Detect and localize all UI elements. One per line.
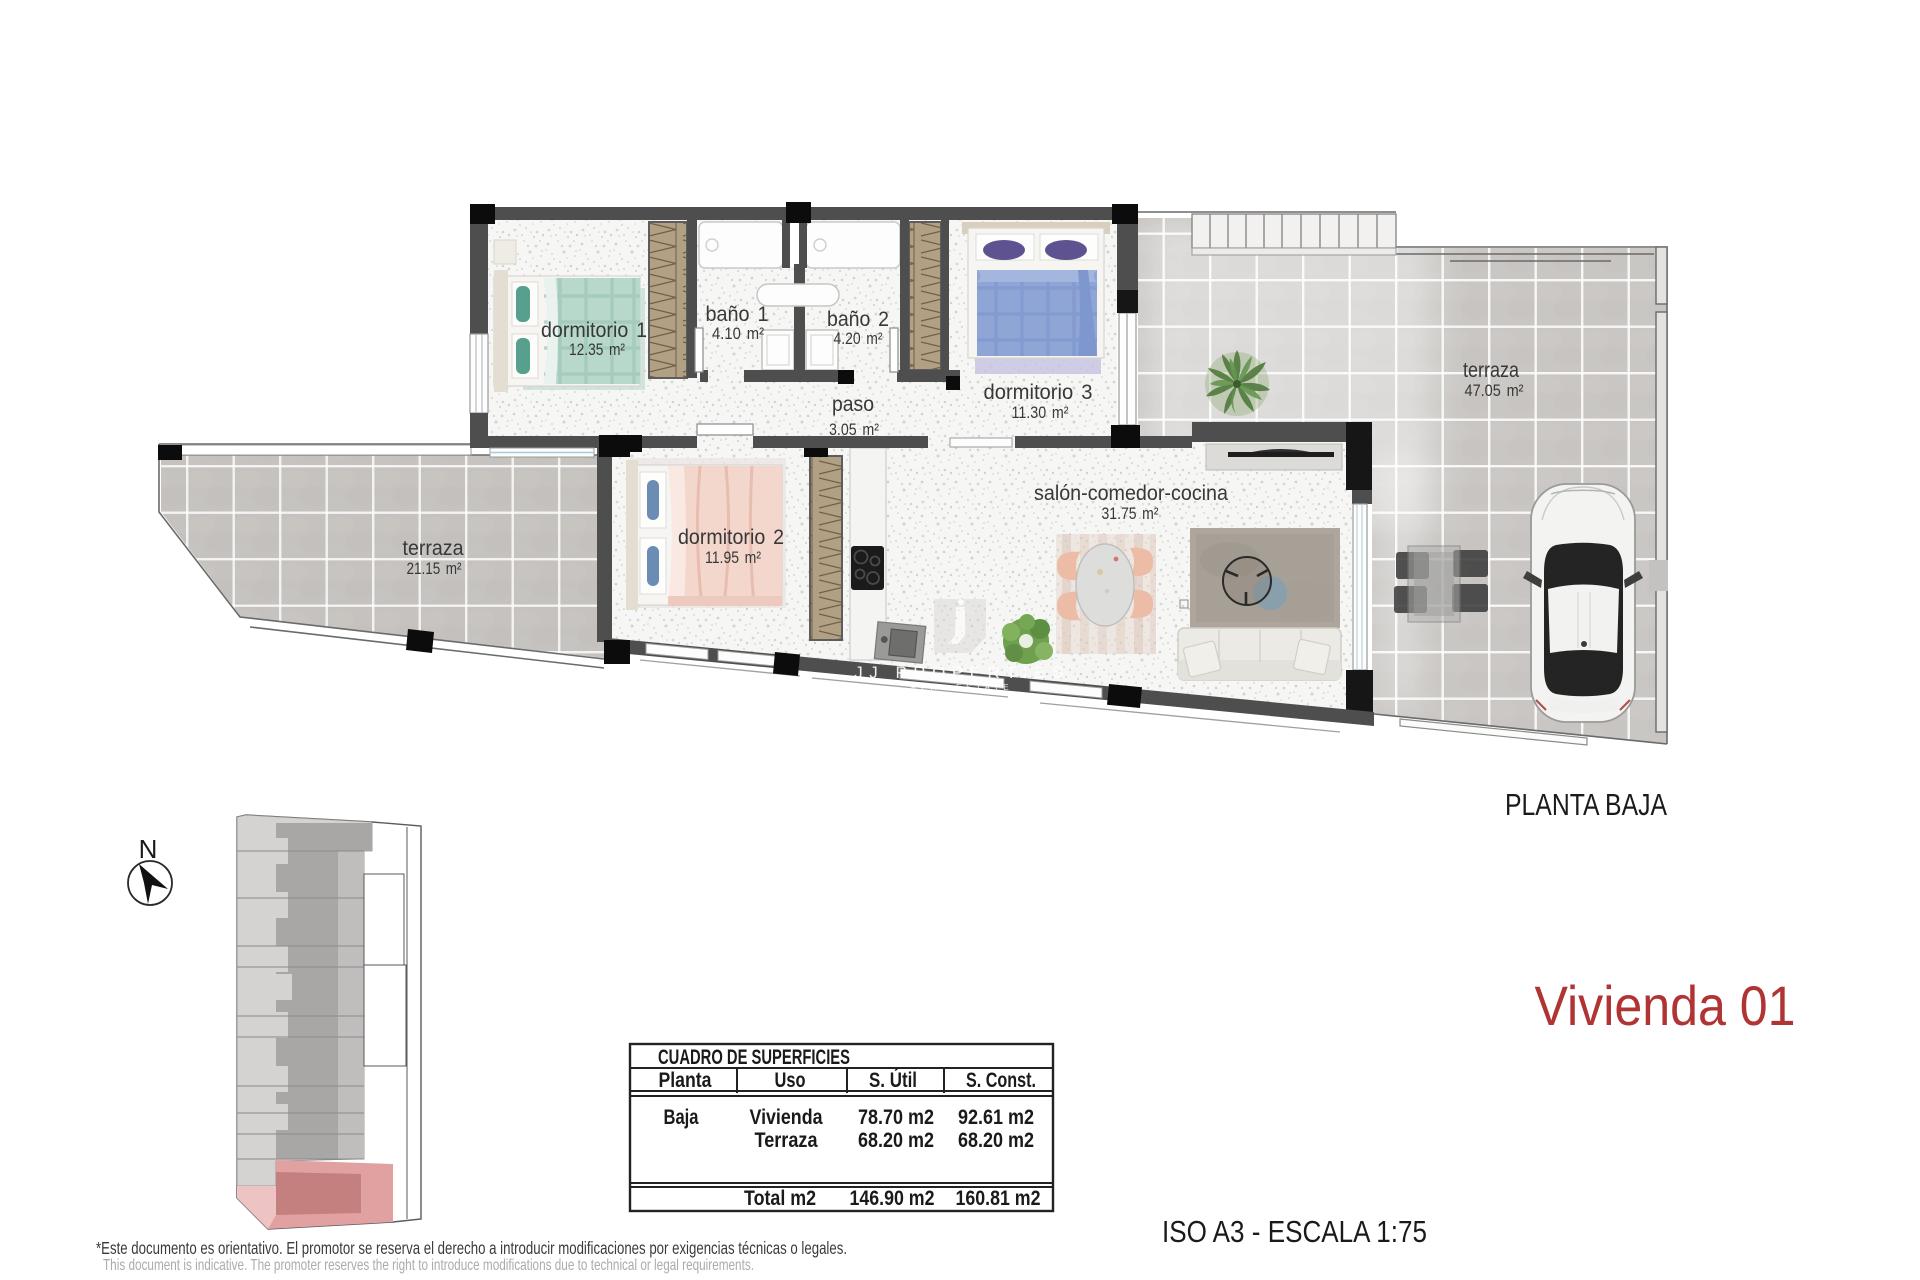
svg-text:salón-comedor-cocina: salón-comedor-cocina [1034, 482, 1228, 505]
svg-text:Uso: Uso [775, 1069, 806, 1092]
svg-text:4.10 m²: 4.10 m² [712, 325, 764, 343]
svg-text:CUADRO DE SUPERFICIES: CUADRO DE SUPERFICIES [658, 1046, 850, 1069]
svg-text:160.81 m2: 160.81 m2 [956, 1187, 1041, 1210]
svg-text:dormitorio 2: dormitorio 2 [678, 526, 784, 549]
svg-text:4.20 m²: 4.20 m² [834, 330, 883, 348]
svg-text:*Este documento es orientativo: *Este documento es orientativo. El promo… [96, 1238, 847, 1258]
svg-text:ISO A3 - ESCALA 1:75: ISO A3 - ESCALA 1:75 [1162, 1214, 1427, 1249]
svg-text:N: N [139, 834, 158, 864]
svg-text:Vivienda: Vivienda [750, 1106, 823, 1129]
svg-text:dormitorio 3: dormitorio 3 [984, 381, 1093, 404]
svg-text:21.15 m²: 21.15 m² [407, 560, 462, 578]
svg-text:dormitorio 1: dormitorio 1 [541, 319, 647, 342]
svg-text:baño 2: baño 2 [827, 308, 889, 331]
svg-text:S. Útil: S. Útil [869, 1068, 917, 1092]
svg-text:Planta: Planta [659, 1069, 712, 1092]
svg-text:Vivienda 01: Vivienda 01 [1535, 974, 1796, 1037]
svg-text:PLANTA BAJA: PLANTA BAJA [1505, 787, 1667, 822]
svg-text:11.30 m²: 11.30 m² [1012, 404, 1069, 422]
svg-text:68.20 m2: 68.20 m2 [958, 1129, 1034, 1152]
svg-text:S. Const.: S. Const. [966, 1069, 1036, 1092]
svg-text:Terraza: Terraza [755, 1129, 818, 1152]
svg-text:Total m2: Total m2 [744, 1187, 816, 1210]
svg-text:paso: paso [832, 393, 874, 416]
svg-text:JJ PROPERTIES: JJ PROPERTIES [854, 663, 1070, 682]
svg-text:terraza: terraza [1463, 359, 1519, 382]
svg-text:3.05 m²: 3.05 m² [829, 421, 879, 439]
svg-text:terraza: terraza [403, 537, 464, 560]
svg-text:This document is indicative. T: This document is indicative. The promote… [103, 1257, 754, 1274]
svg-text:68.20 m2: 68.20 m2 [858, 1129, 934, 1152]
svg-text:47.05 m²: 47.05 m² [1465, 382, 1524, 400]
svg-text:78.70 m2: 78.70 m2 [858, 1106, 934, 1129]
svg-text:11.95 m²: 11.95 m² [705, 549, 761, 567]
svg-text:146.90 m2: 146.90 m2 [850, 1187, 935, 1210]
svg-text:baño 1: baño 1 [706, 303, 769, 326]
svg-text:REAL ESTATE: REAL ESTATE [911, 683, 1013, 692]
svg-text:92.61 m2: 92.61 m2 [958, 1106, 1034, 1129]
svg-text:Baja: Baja [664, 1106, 699, 1129]
svg-text:12.35 m²: 12.35 m² [569, 341, 625, 359]
svg-text:31.75 m²: 31.75 m² [1102, 505, 1159, 523]
